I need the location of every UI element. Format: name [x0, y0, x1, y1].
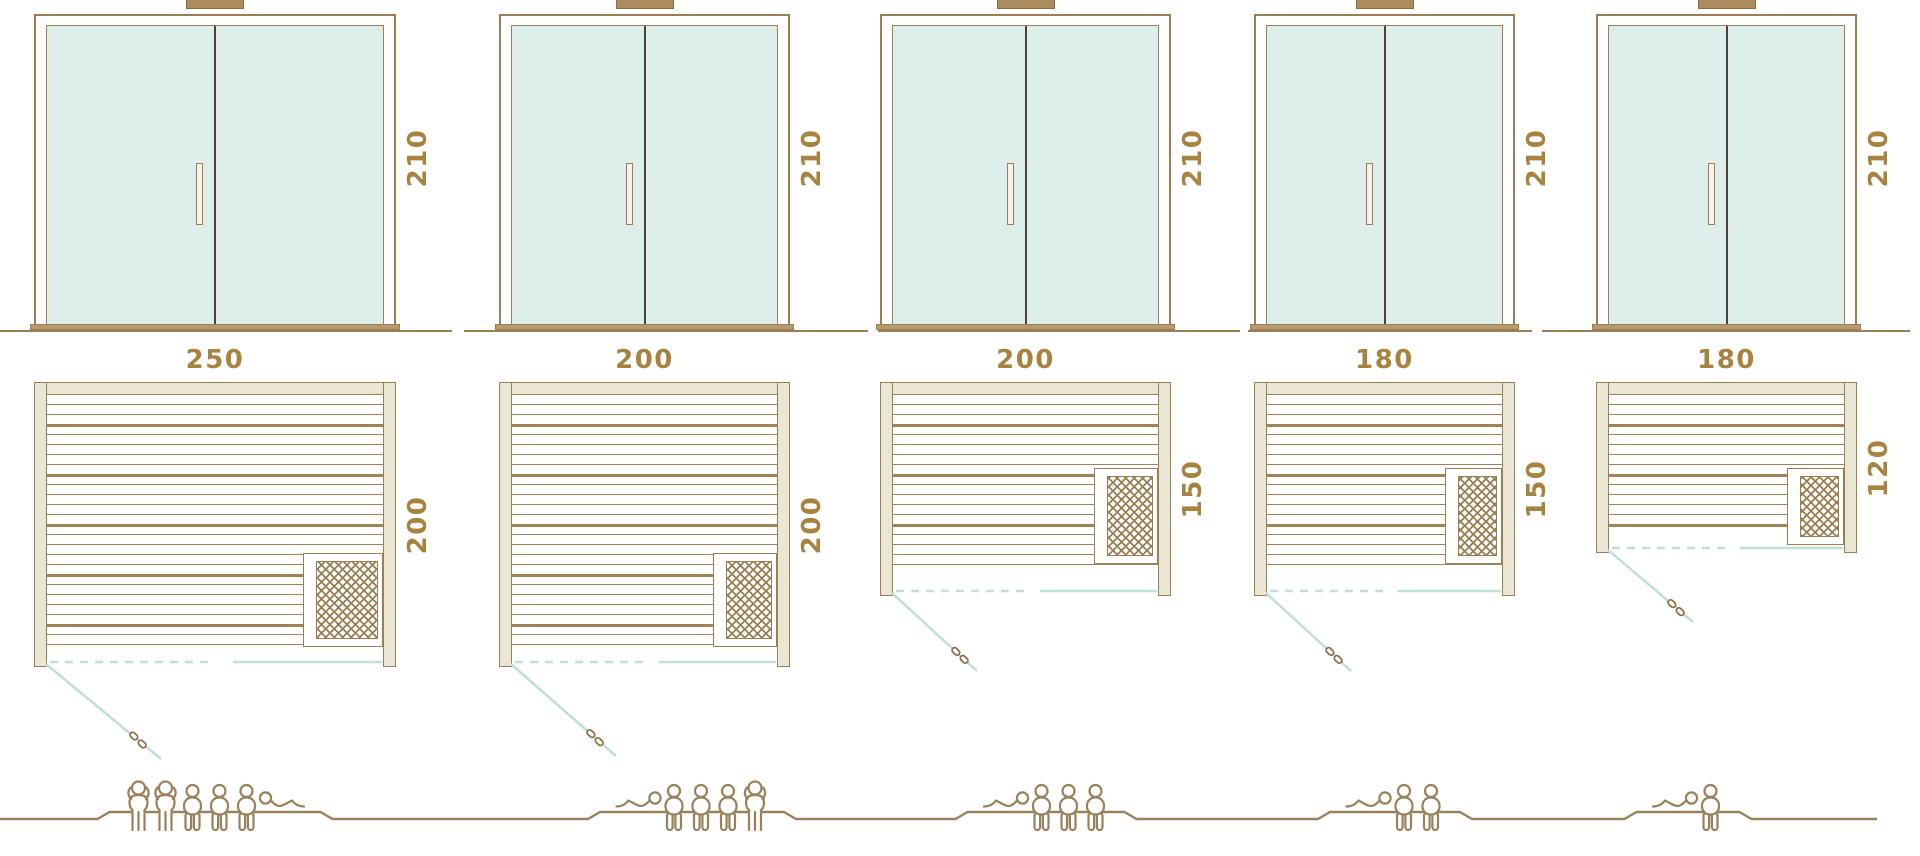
capacity-figures [870, 756, 1242, 856]
depth-dimension-label: 200 [403, 487, 433, 563]
door-swing-drawing [1254, 382, 1515, 726]
width-dimension-label: 200 [880, 344, 1171, 376]
floor-plan [34, 382, 396, 667]
person-sitting-icon [211, 785, 228, 830]
width-dimension-label: 200 [499, 344, 790, 376]
front-elevation [1596, 14, 1857, 331]
person-standing-icon [128, 782, 148, 831]
person-sitting-icon [184, 785, 201, 830]
ground-line [0, 330, 452, 332]
door-swing-drawing [880, 382, 1171, 726]
front-elevation [499, 14, 790, 331]
floor-plan [880, 382, 1171, 596]
width-dimension-label: 250 [34, 344, 396, 376]
front-elevation [34, 14, 396, 331]
door-handle [1708, 163, 1715, 225]
floor-plan [1254, 382, 1515, 596]
door-handle [626, 163, 633, 225]
capacity-figures [1536, 756, 1877, 856]
height-dimension-label: 210 [797, 120, 827, 196]
roof-vent [616, 0, 674, 9]
ground-line [1542, 330, 1910, 332]
door-swing-drawing [1596, 382, 1857, 683]
door-divider [1025, 26, 1027, 324]
person-sitting-icon [1060, 785, 1077, 830]
roof-vent [186, 0, 244, 9]
person-standing-icon [155, 782, 175, 831]
roof-vent [1698, 0, 1756, 9]
person-sitting-icon [1396, 785, 1413, 830]
width-dimension-label: 180 [1596, 344, 1857, 376]
door-divider [1384, 26, 1386, 324]
person-sitting-icon [1702, 785, 1719, 830]
capacity-figures [1242, 756, 1536, 856]
depth-dimension-label: 150 [1178, 451, 1208, 527]
person-sitting-icon [666, 785, 683, 830]
ground-line [1248, 330, 1532, 332]
height-dimension-label: 210 [403, 120, 433, 196]
door-divider [644, 26, 646, 324]
person-sitting-icon [238, 785, 255, 830]
door-divider [1726, 26, 1728, 324]
height-dimension-label: 210 [1864, 120, 1894, 196]
person-sitting-icon [693, 785, 710, 830]
depth-dimension-label: 120 [1864, 430, 1894, 506]
door-swing-drawing [499, 382, 790, 797]
person-lying-icon [260, 792, 304, 806]
glass-double-door [511, 25, 778, 325]
front-elevation [1254, 14, 1515, 331]
capacity-baseline [870, 812, 1242, 819]
glass-double-door [1266, 25, 1503, 325]
person-sitting-icon [1423, 785, 1440, 830]
door-divider [214, 26, 216, 324]
ground-line [878, 330, 1240, 332]
glass-double-door [1608, 25, 1845, 325]
person-sitting-icon [720, 785, 737, 830]
floor-plan [499, 382, 790, 667]
capacity-baseline [460, 812, 870, 819]
door-handle [1007, 163, 1014, 225]
roof-vent [997, 0, 1055, 9]
person-sitting-icon [1033, 785, 1050, 830]
depth-dimension-label: 150 [1522, 451, 1552, 527]
person-lying-icon [984, 792, 1028, 806]
person-lying-icon [1653, 792, 1697, 806]
floor-plan [1596, 382, 1857, 553]
capacity-baseline [0, 812, 460, 819]
person-lying-icon [1347, 792, 1391, 806]
width-dimension-label: 180 [1254, 344, 1515, 376]
height-dimension-label: 210 [1522, 120, 1552, 196]
person-standing-icon [745, 782, 765, 831]
sauna-size-comparison-diagram: 210 250 200 210 200 [0, 0, 1920, 856]
door-swing-drawing [34, 382, 396, 797]
roof-vent [1356, 0, 1414, 9]
person-lying-icon [617, 792, 661, 806]
front-elevation [880, 14, 1171, 331]
capacity-figures [460, 756, 870, 856]
glass-double-door [892, 25, 1159, 325]
capacity-baseline [1242, 812, 1536, 819]
height-dimension-label: 210 [1178, 120, 1208, 196]
door-handle [1366, 163, 1373, 225]
capacity-figures [0, 756, 460, 856]
depth-dimension-label: 200 [797, 487, 827, 563]
door-handle [196, 163, 203, 225]
person-sitting-icon [1087, 785, 1104, 830]
ground-line [464, 330, 868, 332]
glass-double-door [46, 25, 384, 325]
